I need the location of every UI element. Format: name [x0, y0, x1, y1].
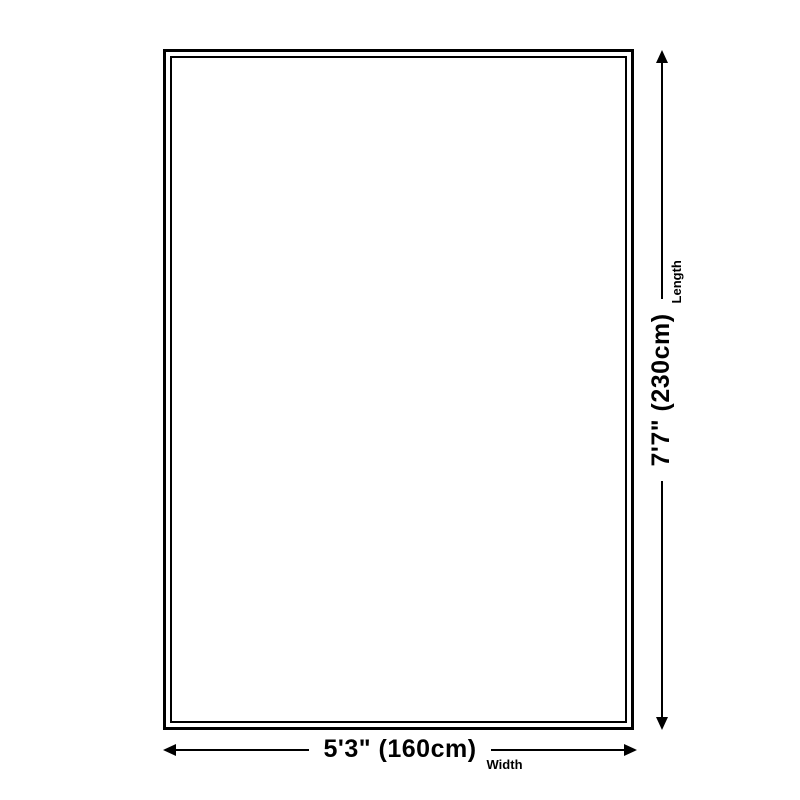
- dimension-line-segment: Length: [655, 50, 669, 299]
- dimension-diagram: 7'7" (230cm) Length 5'3" (160cm) Width: [0, 0, 800, 800]
- length-axis-label: Length: [670, 260, 683, 303]
- arrow-up-icon: [656, 50, 668, 63]
- arrow-left-icon: [163, 744, 176, 756]
- dimension-line: [491, 749, 624, 751]
- width-axis-label: Width: [487, 758, 523, 771]
- rug-outline: [163, 49, 634, 730]
- dimension-line-segment: Width: [491, 743, 637, 757]
- length-dimension-bar: 7'7" (230cm) Length: [655, 50, 669, 730]
- dimension-line: [176, 749, 309, 751]
- dimension-line: [661, 481, 663, 717]
- dimension-line-segment: [163, 743, 309, 757]
- arrow-down-icon: [656, 717, 668, 730]
- dimension-line-segment: [655, 481, 669, 730]
- dimension-line: [661, 63, 663, 299]
- width-size-label: 5'3" (160cm): [323, 737, 476, 762]
- arrow-right-icon: [624, 744, 637, 756]
- rug-inner-border: [170, 56, 627, 723]
- width-dimension-bar: 5'3" (160cm) Width: [163, 743, 637, 757]
- length-size-label: 7'7" (230cm): [649, 313, 674, 466]
